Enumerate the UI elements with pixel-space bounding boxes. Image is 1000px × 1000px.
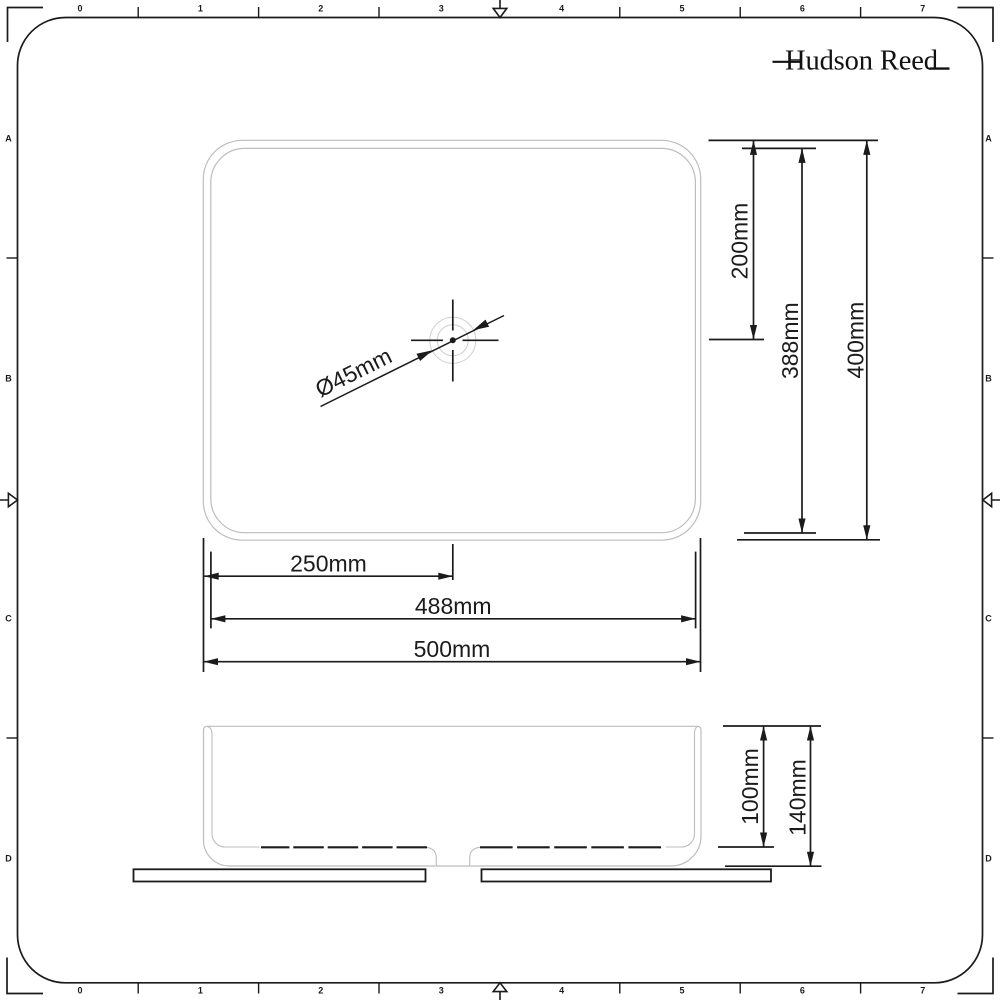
svg-text:2: 2	[318, 4, 323, 14]
svg-text:D: D	[5, 854, 12, 864]
svg-text:B: B	[5, 374, 12, 384]
svg-text:140mm: 140mm	[785, 759, 811, 836]
svg-text:A: A	[985, 134, 992, 144]
svg-text:A: A	[5, 134, 12, 144]
svg-text:5: 5	[679, 4, 684, 14]
svg-text:500mm: 500mm	[414, 636, 491, 662]
svg-text:388mm: 388mm	[777, 302, 803, 379]
svg-text:0: 0	[77, 986, 82, 996]
svg-text:5: 5	[679, 986, 684, 996]
svg-text:C: C	[985, 614, 992, 624]
svg-text:0: 0	[77, 4, 82, 14]
svg-text:6: 6	[800, 986, 805, 996]
svg-text:D: D	[985, 854, 992, 864]
svg-text:400mm: 400mm	[843, 302, 869, 379]
svg-text:C: C	[5, 614, 12, 624]
svg-text:1: 1	[198, 986, 203, 996]
svg-text:4: 4	[559, 986, 564, 996]
svg-text:4: 4	[559, 4, 564, 14]
svg-text:250mm: 250mm	[290, 551, 367, 577]
svg-text:7: 7	[920, 4, 925, 14]
svg-text:488mm: 488mm	[415, 593, 492, 619]
svg-text:7: 7	[920, 986, 925, 996]
svg-text:2: 2	[318, 986, 323, 996]
svg-text:B: B	[985, 374, 992, 384]
svg-text:3: 3	[439, 4, 444, 14]
svg-text:200mm: 200mm	[727, 203, 753, 280]
svg-text:6: 6	[800, 4, 805, 14]
svg-text:100mm: 100mm	[737, 748, 763, 825]
svg-text:3: 3	[439, 986, 444, 996]
svg-text:1: 1	[198, 4, 203, 14]
svg-text:Hudson Reed: Hudson Reed	[785, 46, 938, 77]
